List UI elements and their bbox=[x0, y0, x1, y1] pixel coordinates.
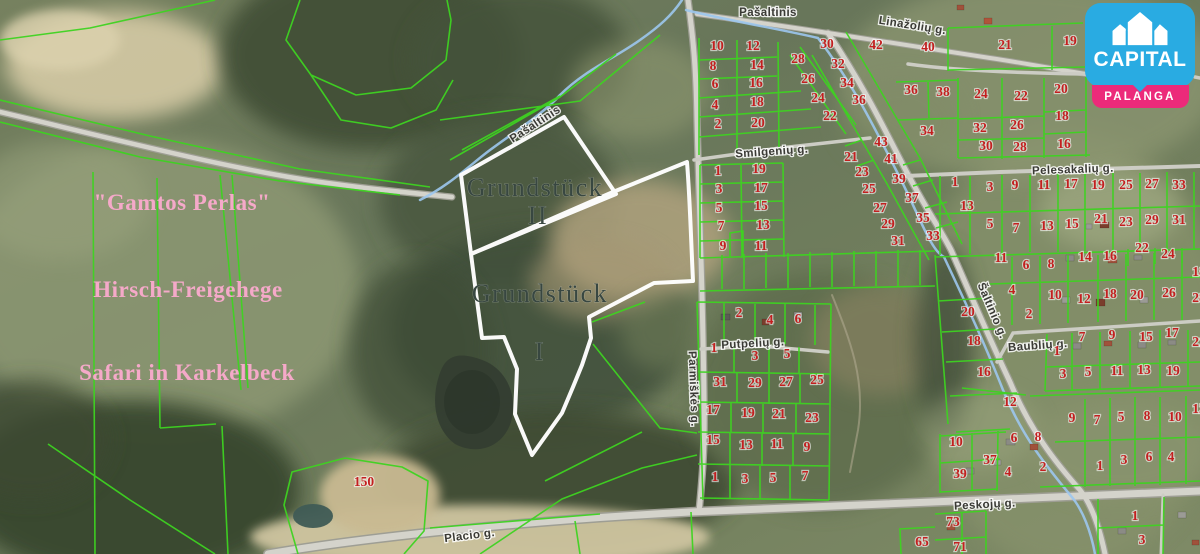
parcel-number: 26 bbox=[1162, 285, 1176, 300]
parcel-number: 17 bbox=[1064, 176, 1078, 191]
houses-icon bbox=[1109, 11, 1171, 47]
parcel-number: 1 bbox=[1132, 508, 1139, 523]
parcel-number: 5 bbox=[987, 216, 994, 231]
parcel-number: 24 bbox=[974, 86, 988, 101]
parcel-number: 4 bbox=[767, 312, 774, 327]
parcel-number: 7 bbox=[802, 468, 809, 483]
parcel-number: 7 bbox=[1013, 220, 1020, 235]
parcel-number: 27 bbox=[779, 374, 793, 389]
parcel-number: 5 bbox=[770, 470, 777, 485]
parcel-number: 15 bbox=[1139, 329, 1153, 344]
parcel-number: 22 bbox=[1014, 88, 1028, 103]
parcel-number: 2 bbox=[1040, 459, 1047, 474]
parcel-number: 16 bbox=[1057, 136, 1071, 151]
parcel-number: 8 bbox=[710, 58, 717, 73]
parcel-number: 30 bbox=[820, 36, 834, 51]
parcel-number: 30 bbox=[979, 138, 993, 153]
parcel-number: 28 bbox=[1192, 290, 1200, 305]
parcel-number: 23 bbox=[1119, 214, 1133, 229]
parcel-number: 11 bbox=[1038, 177, 1051, 192]
aerial-map: PašaltinisPašaltinisLinažolių g.Smilgeni… bbox=[0, 0, 1200, 554]
parcel-number: 5 bbox=[784, 346, 791, 361]
parcel-number: 1 bbox=[952, 174, 959, 189]
parcel-number: 15 bbox=[706, 432, 720, 447]
parcel-number: 5 bbox=[1085, 364, 1092, 379]
parcel-number: 10 bbox=[949, 434, 963, 449]
parcel-number: 1 bbox=[1097, 458, 1104, 473]
parcel-number: 36 bbox=[852, 92, 866, 107]
parcel-number: 3 bbox=[1060, 366, 1067, 381]
parcel-number: 71 bbox=[953, 539, 967, 554]
parcel-number: 16 bbox=[749, 75, 763, 90]
parcel-number: 1 bbox=[711, 340, 718, 355]
parcel-number: 24 bbox=[811, 90, 825, 105]
parcel-number: 3 bbox=[987, 179, 994, 194]
parcel-number: 19 bbox=[1063, 33, 1077, 48]
parcel-number: 26 bbox=[1010, 117, 1024, 132]
parcel-number: 18 bbox=[1192, 264, 1200, 279]
logo-blue-panel: CAPITAL bbox=[1085, 3, 1195, 87]
parcel-number: 29 bbox=[881, 216, 895, 231]
parcel-number: 20 bbox=[961, 304, 975, 319]
parcel-number: 15 bbox=[754, 198, 768, 213]
parcel-number: 18 bbox=[1055, 108, 1069, 123]
parcel-number: 41 bbox=[884, 151, 898, 166]
parcel-number: 13 bbox=[1040, 218, 1054, 233]
parcel-number: 8 bbox=[1048, 256, 1055, 271]
parcel-number: 37 bbox=[905, 190, 919, 205]
parcel-number: 34 bbox=[840, 75, 854, 90]
parcel-number: 5 bbox=[1118, 409, 1125, 424]
logo-brand-text: CAPITAL bbox=[1094, 48, 1187, 72]
parcel-number: 14 bbox=[1078, 249, 1092, 264]
parcel-number: 12 bbox=[1003, 394, 1017, 409]
parcel-number: 19 bbox=[741, 405, 755, 420]
parcel-number: 31 bbox=[713, 374, 727, 389]
parcel-number: 33 bbox=[1172, 177, 1186, 192]
parcel-number: 6 bbox=[1011, 430, 1018, 445]
parcel-number: 21 bbox=[1192, 334, 1200, 349]
parcel-number: 19 bbox=[1091, 177, 1105, 192]
parcel-number: 21 bbox=[1094, 211, 1108, 226]
parcel-number: 12 bbox=[1077, 291, 1091, 306]
parcel-number: 12 bbox=[746, 38, 760, 53]
parcel-number: 29 bbox=[748, 375, 762, 390]
parcel-number: 25 bbox=[862, 181, 876, 196]
parcel-number: 33 bbox=[926, 228, 940, 243]
parcel-number: 43 bbox=[874, 134, 888, 149]
parcel-number: 3 bbox=[716, 181, 723, 196]
parcel-number: 27 bbox=[873, 200, 887, 215]
parcel-number: 34 bbox=[920, 123, 934, 138]
parcel-number: 9 bbox=[804, 439, 811, 454]
parcel-number: 25 bbox=[1119, 177, 1133, 192]
parcel-number: 2 bbox=[715, 116, 722, 131]
parcel-number: 4 bbox=[1009, 282, 1016, 297]
parcel-number: 6 bbox=[712, 76, 719, 91]
parcel-number: 73 bbox=[946, 514, 960, 529]
parcel-number: 10 bbox=[710, 38, 724, 53]
parcel-number: 27 bbox=[1145, 176, 1159, 191]
parcel-number: 18 bbox=[750, 94, 764, 109]
parcel-number: 9 bbox=[1109, 327, 1116, 342]
parcel-number: 3 bbox=[742, 471, 749, 486]
parcel-number: 3 bbox=[1121, 452, 1128, 467]
parcel-number: 21 bbox=[844, 149, 858, 164]
parcel-number: 13 bbox=[1137, 362, 1151, 377]
parcel-number: 1 bbox=[1054, 343, 1061, 358]
parcel-number: 19 bbox=[752, 161, 766, 176]
parcel-number: 26 bbox=[801, 71, 815, 86]
parcel-number: 13 bbox=[960, 198, 974, 213]
parcel-number: 25 bbox=[810, 372, 824, 387]
parcel-number: 17 bbox=[1165, 325, 1179, 340]
parcel-number: 8 bbox=[1035, 429, 1042, 444]
parcel-number: 29 bbox=[1145, 212, 1159, 227]
parcel-number: 6 bbox=[1023, 257, 1030, 272]
parcel-number: 1 bbox=[715, 163, 722, 178]
parcel-number: 4 bbox=[712, 97, 719, 112]
logo-city-text: PALANGA bbox=[1104, 91, 1175, 103]
logo-notch bbox=[1133, 85, 1147, 92]
parcel-number: 36 bbox=[904, 82, 918, 97]
parcel-number: 23 bbox=[805, 410, 819, 425]
parcel-number: 16 bbox=[1103, 248, 1117, 263]
parcel-number: 7 bbox=[1094, 412, 1101, 427]
parcel-number: 10 bbox=[1048, 287, 1062, 302]
pond bbox=[293, 504, 333, 528]
parcel-number: 3 bbox=[1139, 532, 1146, 547]
parcel-number: 8 bbox=[1144, 408, 1151, 423]
parcel-number: 42 bbox=[869, 37, 883, 52]
parcel-number: 23 bbox=[855, 164, 869, 179]
parcel-number: 150 bbox=[354, 474, 375, 489]
parcel-number: 17 bbox=[754, 180, 768, 195]
map-canvas[interactable]: PašaltinisPašaltinisLinažolių g.Smilgeni… bbox=[0, 0, 1200, 554]
parcel-number: 15 bbox=[1065, 216, 1079, 231]
parcel-number: 18 bbox=[1103, 286, 1117, 301]
parcel-number: 22 bbox=[823, 108, 837, 123]
parcel-number: 37 bbox=[983, 452, 997, 467]
parcel-number: 3 bbox=[752, 348, 759, 363]
parcel-number: 4 bbox=[1005, 464, 1012, 479]
plot-label: II bbox=[528, 201, 548, 230]
plot-label: I bbox=[535, 337, 545, 366]
parcel-number: 31 bbox=[891, 233, 905, 248]
parcel-number: 65 bbox=[915, 534, 929, 549]
parcel-number: 1 bbox=[712, 469, 719, 484]
parcel-number: 31 bbox=[1172, 212, 1186, 227]
parcel-number: 5 bbox=[716, 200, 723, 215]
capital-palanga-logo: CAPITAL PALANGA bbox=[1085, 3, 1195, 108]
parcel-number: 19 bbox=[1166, 363, 1180, 378]
parcel-number: 7 bbox=[1079, 329, 1086, 344]
parcel-number: 9 bbox=[1069, 410, 1076, 425]
parcel-number: 40 bbox=[921, 39, 935, 54]
parcel-number: 32 bbox=[973, 120, 987, 135]
parcel-number: 13 bbox=[756, 217, 770, 232]
area-label: Hirsch-Freigehege bbox=[93, 277, 282, 302]
parcel-number: 38 bbox=[936, 84, 950, 99]
parcel-number: 2 bbox=[1026, 306, 1033, 321]
parcel-number: 18 bbox=[967, 333, 981, 348]
parcel-number: 4 bbox=[1168, 449, 1175, 464]
plot-label: Grundstück bbox=[467, 173, 603, 202]
parcel-number: 28 bbox=[1013, 139, 1027, 154]
parcel-number: 21 bbox=[998, 37, 1012, 52]
parcel-number: 13 bbox=[739, 437, 753, 452]
parcel-number: 35 bbox=[916, 210, 930, 225]
parcel-number: 7 bbox=[718, 218, 725, 233]
parcel-number: 12 bbox=[1192, 401, 1200, 416]
parcel-number: 11 bbox=[995, 250, 1008, 265]
parcel-number: 32 bbox=[831, 56, 845, 71]
parcel-number: 11 bbox=[771, 436, 784, 451]
parcel-number: 24 bbox=[1161, 246, 1175, 261]
parcel-number: 39 bbox=[953, 466, 967, 481]
parcel-number: 21 bbox=[772, 406, 786, 421]
parcel-number: 20 bbox=[1054, 81, 1068, 96]
parcel-number: 9 bbox=[720, 238, 727, 253]
plot-label: Grundstück bbox=[472, 279, 608, 308]
parcel-number: 2 bbox=[736, 305, 743, 320]
parcel-number: 22 bbox=[1135, 240, 1149, 255]
parcel-number: 17 bbox=[706, 402, 720, 417]
parcel-number: 11 bbox=[1111, 363, 1124, 378]
parcel-number: 28 bbox=[791, 51, 805, 66]
parcel-number: 10 bbox=[1168, 409, 1182, 424]
parcel-number: 6 bbox=[795, 311, 802, 326]
parcel-number: 11 bbox=[755, 238, 768, 253]
area-label: Safari in Karkelbeck bbox=[79, 360, 295, 385]
parcel-number: 20 bbox=[1130, 287, 1144, 302]
parcel-number: 14 bbox=[750, 57, 764, 72]
area-label: "Gamtos Perlas" bbox=[94, 190, 271, 215]
parcel-number: 6 bbox=[1146, 449, 1153, 464]
street-label: Pašaltinis bbox=[739, 7, 797, 19]
parcel-number: 39 bbox=[892, 171, 906, 186]
parcel-number: 9 bbox=[1012, 177, 1019, 192]
parcel-number: 16 bbox=[977, 364, 991, 379]
parcel-number: 20 bbox=[751, 115, 765, 130]
